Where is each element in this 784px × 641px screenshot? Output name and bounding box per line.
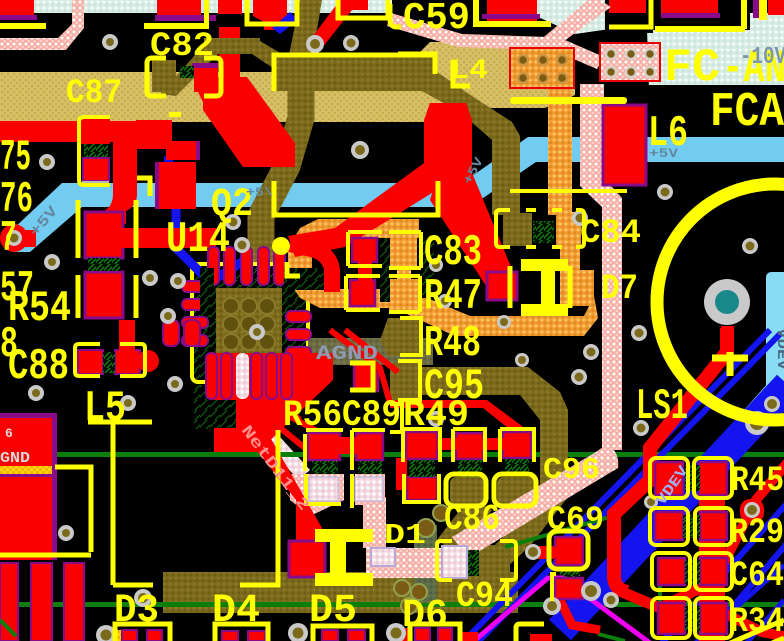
svg-text:R45: R45 [731,461,784,501]
svg-text:D3: D3 [114,589,159,634]
svg-text:D6: D6 [402,594,448,639]
svg-text:D1: D1 [384,519,426,552]
svg-text:D4: D4 [212,589,260,634]
svg-text:C88: C88 [8,342,69,392]
svg-text:GND: GND [0,450,30,467]
svg-text:LS1: LS1 [636,382,688,432]
svg-text:C83: C83 [424,228,482,278]
svg-text:FCA: FCA [710,86,784,140]
svg-text:VDEV: VDEV [773,328,784,370]
svg-text:+5V: +5V [649,146,678,161]
svg-text:R29: R29 [730,513,784,553]
svg-text:-10V: -10V [740,44,784,71]
svg-text:R49: R49 [403,395,469,437]
svg-text:R47: R47 [424,272,482,322]
svg-text:AGND: AGND [316,343,378,366]
svg-text:C64: C64 [730,556,784,596]
svg-text:D5: D5 [309,589,357,634]
svg-text:D7: D7 [601,269,638,309]
svg-text:C96: C96 [543,453,600,488]
svg-text:7: 7 [0,214,17,264]
svg-text:C59: C59 [403,0,470,40]
svg-text:+5\: +5\ [246,185,273,200]
svg-text:6: 6 [5,426,13,441]
svg-text:C94: C94 [456,576,513,617]
svg-text:C84: C84 [580,215,641,253]
svg-text:C87: C87 [66,75,122,113]
svg-text:R56C89: R56C89 [283,395,401,437]
svg-text:C69: C69 [547,502,604,540]
svg-text:L5: L5 [84,384,126,434]
svg-text:C82: C82 [150,28,214,66]
svg-text:L4: L4 [450,56,488,87]
svg-text:R34: R34 [730,602,784,641]
svg-text:C86: C86 [444,499,500,540]
